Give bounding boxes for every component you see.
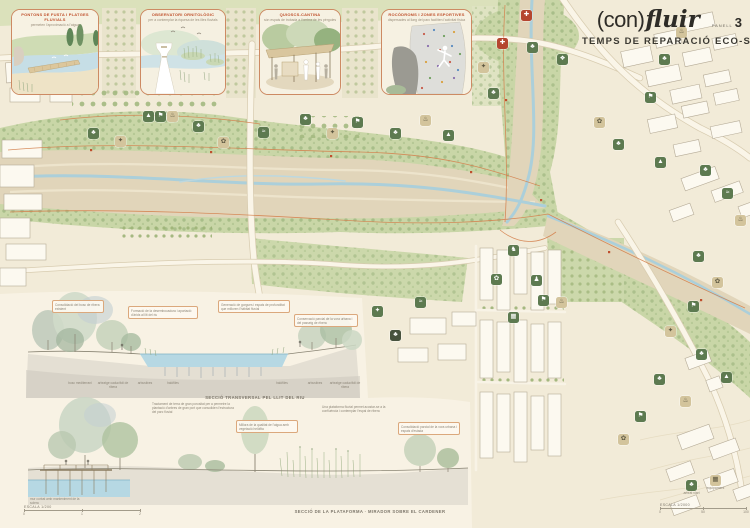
panel-subtitle: TEMPS DE REPARACIÓ ECO-SOCIAL xyxy=(582,36,742,47)
inset-kiosk: QUIOSCS-CANTINA són espais de trobada a … xyxy=(259,9,341,95)
inset-pontoons-title: PONTONS DE FUSTA I PLATGES FLUVIALS xyxy=(14,13,96,23)
masterplan-svg xyxy=(0,0,750,528)
scale-tick: 1 xyxy=(81,512,83,516)
inset-kiosk-illustration xyxy=(260,10,340,94)
inset-kiosk-subtitle: són espais de trobada a l'ombra de les p… xyxy=(262,18,338,22)
section2-caption: SECCIÓ DE LA PLATAFORMA · MIRADOR SOBRE … xyxy=(280,509,460,514)
panel-header: (con) fluir PANELL 3 TEMPS DE REPARACIÓ … xyxy=(582,6,742,47)
brand-title-italic: fluir xyxy=(645,6,699,33)
inset-pontoons-subtitle: permeten l'aproximació a l'aigua xyxy=(14,23,96,27)
inset-observatory-illustration xyxy=(141,10,225,94)
scale-tick: 0 xyxy=(23,512,25,516)
scale-tick: 0 xyxy=(659,510,661,514)
scale-bar-left: ESCALA 1/200 012 xyxy=(24,505,140,519)
masterplan-map xyxy=(0,0,750,528)
competition-panel: PONTONS DE FUSTA I PLATGES FLUVIALS perm… xyxy=(0,0,750,528)
inset-observatory: OBSERVATORI ORNITOLÒGIC per a contemplar… xyxy=(140,9,226,95)
inset-pontoons: PONTONS DE FUSTA I PLATGES FLUVIALS perm… xyxy=(11,9,99,95)
scale-tick: 50 xyxy=(701,510,705,514)
inset-observatory-subtitle: per a contemplar la riquesa de les illes… xyxy=(143,18,223,22)
brand-title-prefix: (con) xyxy=(597,7,645,33)
panel-number: 3 xyxy=(735,15,742,30)
section1-caption: SECCIÓ TRANSVERSAL PEL LLIT DEL RIU xyxy=(175,395,335,400)
scale-right-ticks: 050100 xyxy=(660,508,746,517)
inset-climbing-subtitle: dispersades al llarg del parc faciliten … xyxy=(384,18,469,22)
scale-tick: 100 xyxy=(743,510,749,514)
scale-left-ticks: 012 xyxy=(24,510,140,519)
panel-label: PANELL xyxy=(712,23,733,28)
inset-climbing-illustration xyxy=(382,10,471,94)
scale-bar-right: ESCALA 1/2000 050100 xyxy=(660,503,746,517)
scale-tick: 2 xyxy=(139,512,141,516)
inset-climbing: ROCÒDROMS I ZONES ESPORTIVES dispersades… xyxy=(381,9,472,95)
